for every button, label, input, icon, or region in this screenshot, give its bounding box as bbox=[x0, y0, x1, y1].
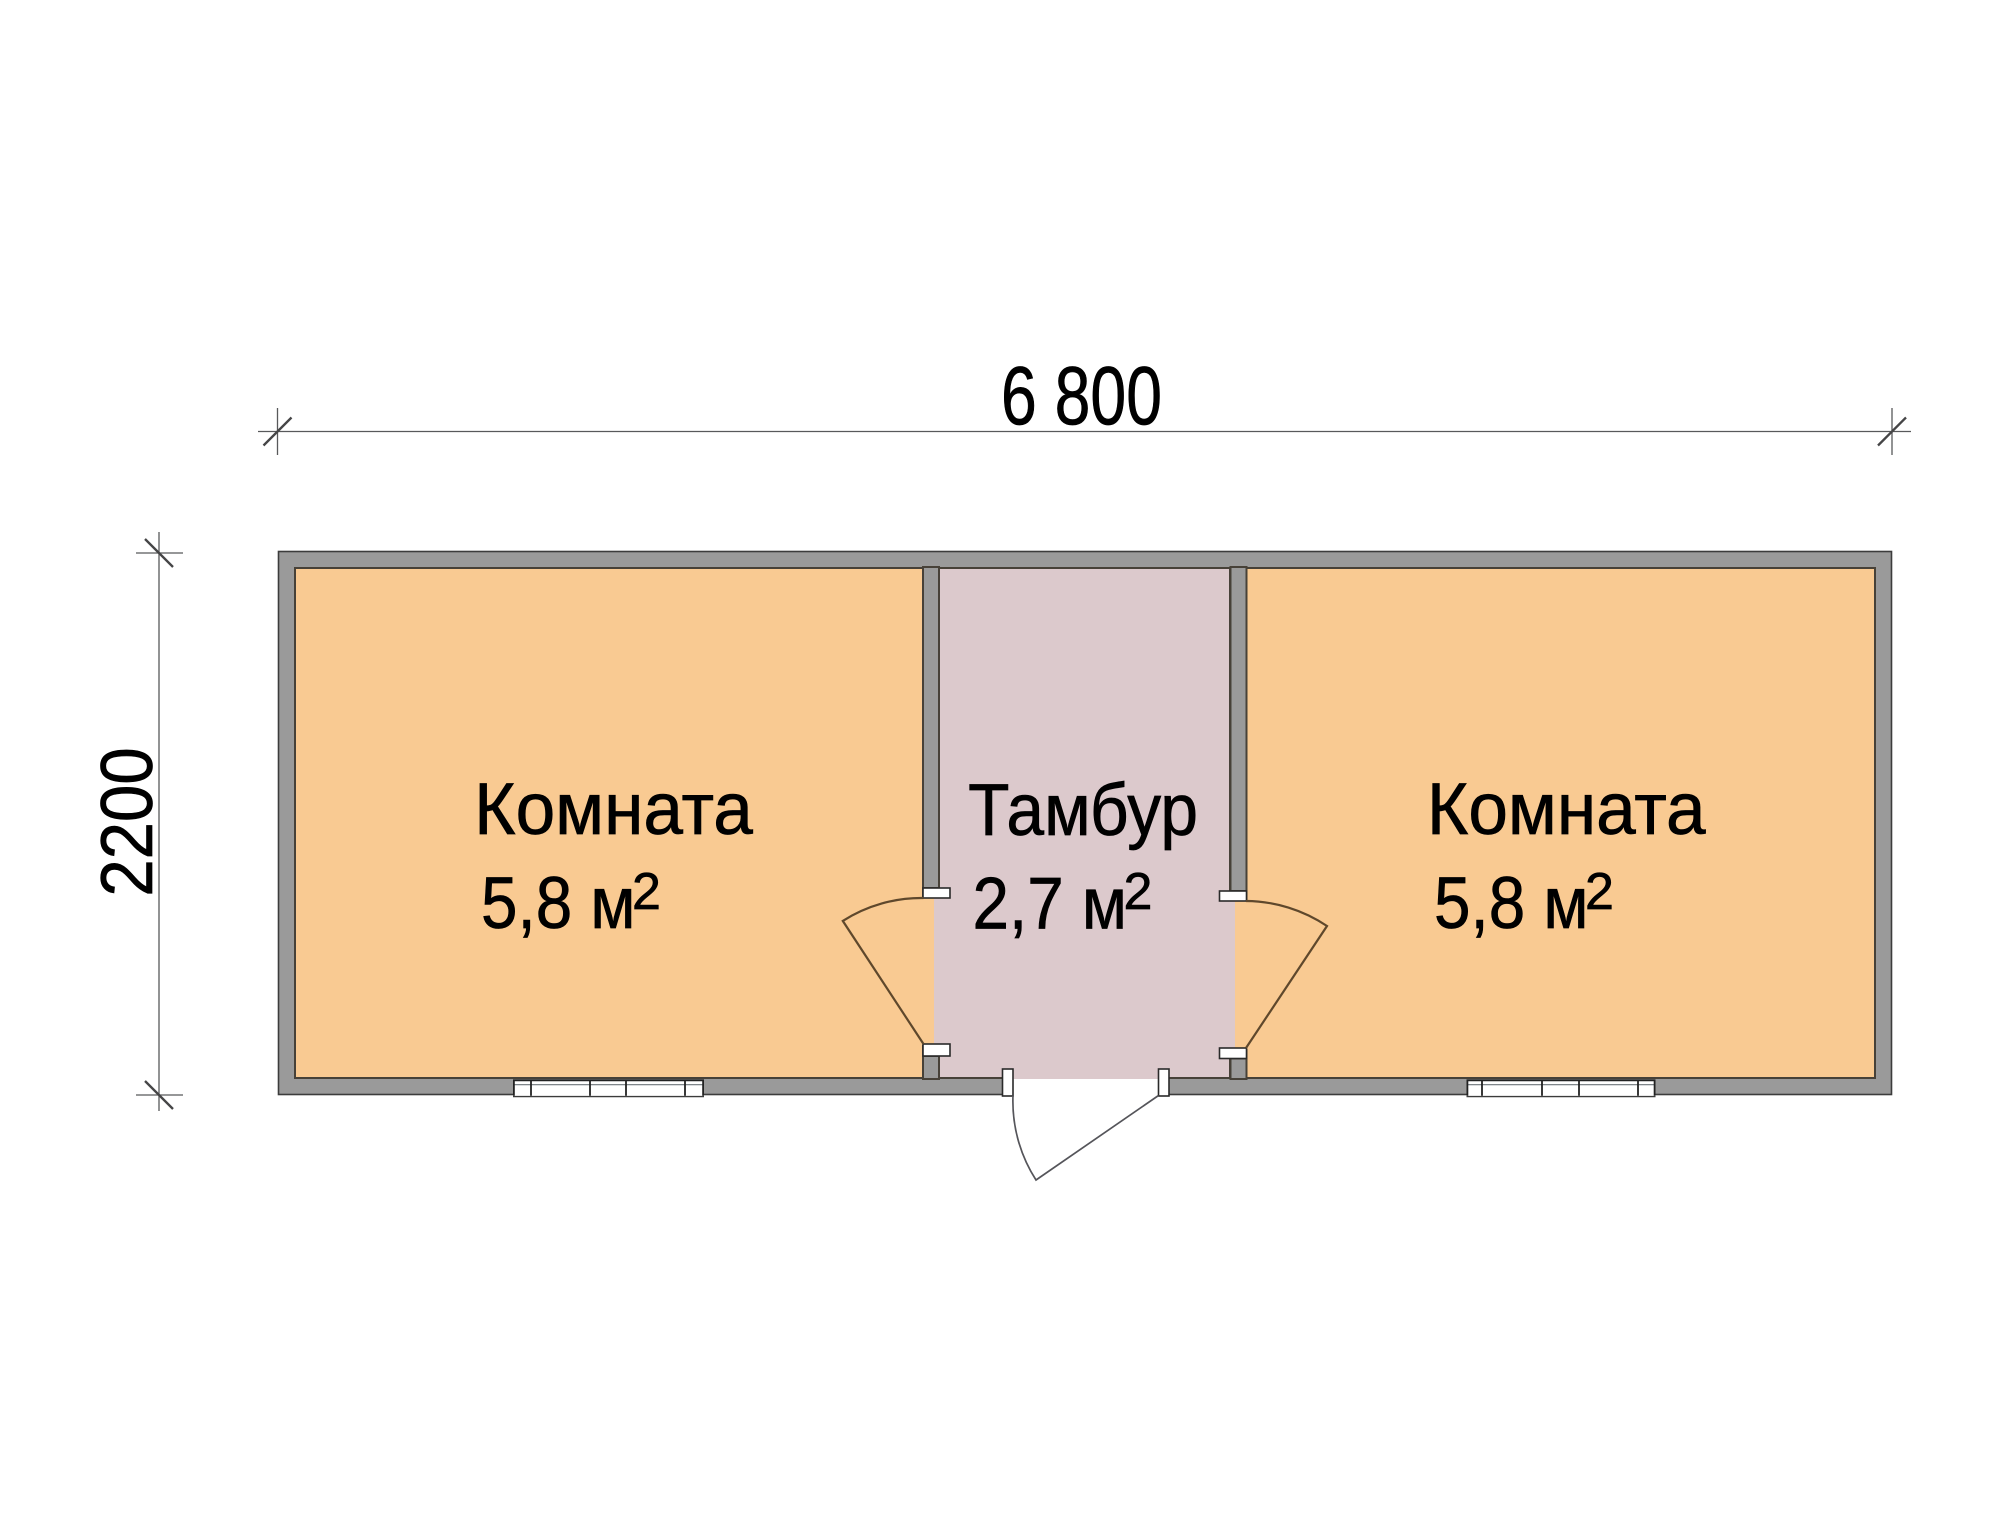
svg-text:5,8 м: 5,8 м bbox=[1434, 863, 1589, 944]
svg-text:5,8 м: 5,8 м bbox=[481, 863, 636, 944]
svg-text:2: 2 bbox=[1585, 863, 1614, 921]
svg-text:6 800: 6 800 bbox=[1001, 349, 1162, 442]
svg-text:Комната: Комната bbox=[474, 769, 753, 850]
svg-text:2: 2 bbox=[1124, 863, 1153, 921]
svg-text:Комната: Комната bbox=[1427, 769, 1706, 850]
svg-text:2,7 м: 2,7 м bbox=[973, 864, 1128, 945]
svg-text:2200: 2200 bbox=[86, 747, 167, 896]
svg-text:2: 2 bbox=[632, 863, 661, 921]
svg-text:Тамбур: Тамбур bbox=[968, 770, 1198, 851]
